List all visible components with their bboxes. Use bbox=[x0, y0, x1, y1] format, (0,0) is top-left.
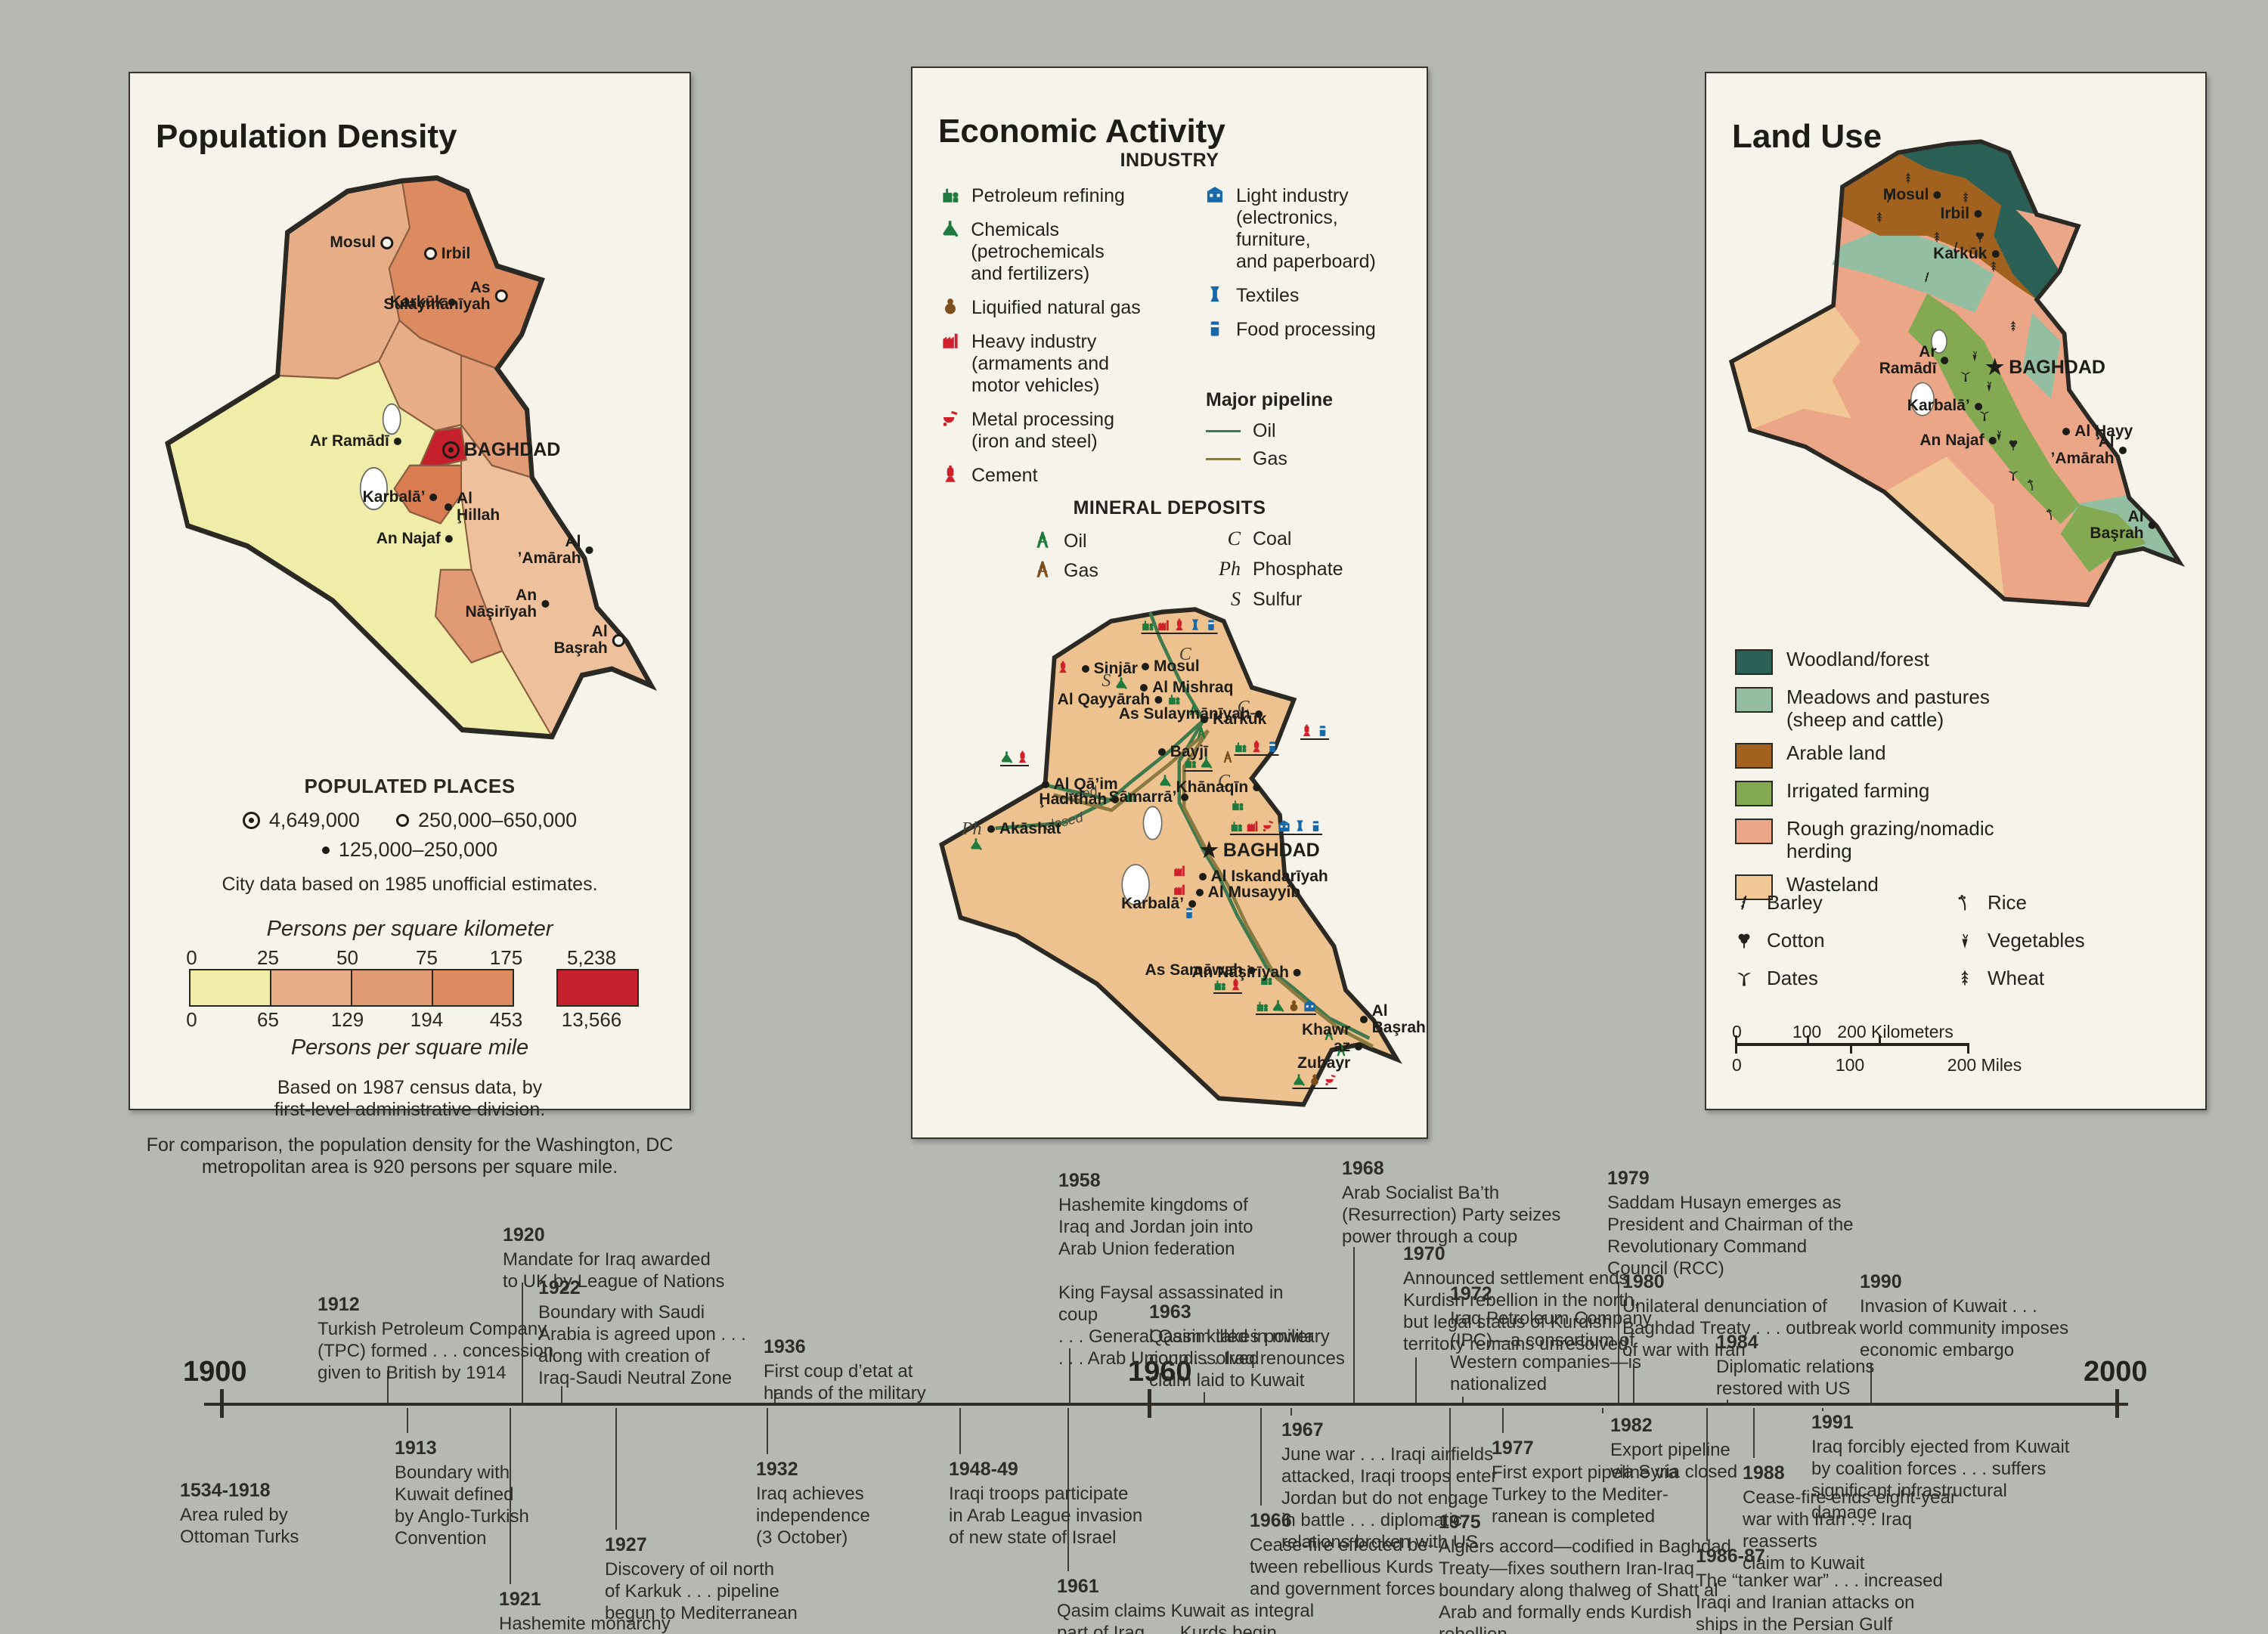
mineral-icons: Oil Gas bbox=[1033, 531, 1139, 582]
pipeline-heading: Major pipeline bbox=[1206, 389, 1417, 411]
legend-item-lng: Liquified natural gas bbox=[941, 297, 1191, 319]
liquified-natural-gas-icon bbox=[941, 297, 959, 315]
mineral-letter-phosphate: Ph bbox=[962, 819, 982, 840]
city-marker bbox=[448, 299, 456, 306]
map-city-samarra: Sāmarrā’ bbox=[1109, 789, 1189, 806]
per-sq-mile-title: Persons per square mile bbox=[145, 1035, 674, 1060]
barley-icon bbox=[1735, 893, 1753, 911]
heavy-industry-icon bbox=[1173, 883, 1185, 896]
map-city-bayji: Bayjī bbox=[1158, 744, 1208, 760]
heavy-industry-icon bbox=[1246, 819, 1259, 832]
city-data-note: City data based on 1985 unofficial estim… bbox=[145, 874, 674, 896]
legend-item-wheat: Wheat bbox=[1956, 961, 2137, 995]
per-sq-km-title: Persons per square kilometer bbox=[145, 917, 674, 942]
food-processing-icon bbox=[1206, 319, 1224, 337]
tick-1900 bbox=[220, 1389, 224, 1418]
map-city-baghdad: BAGHDAD bbox=[442, 440, 561, 460]
timeline-event-1913: 1913Boundary with Kuwait defined by Angl… bbox=[395, 1437, 569, 1549]
map-city-nasiriyah: An Nāşirīyah bbox=[465, 587, 549, 620]
land-use-legend: Woodland/forest Meadows and pastures (sh… bbox=[1735, 648, 2053, 900]
map-city-amarah: Al ’Amārah bbox=[2051, 434, 2127, 467]
city-marker bbox=[445, 503, 452, 511]
industry-heading: INDUSTRY bbox=[912, 150, 1427, 172]
light-industry-icon bbox=[1303, 999, 1316, 1012]
map-city-baghdad: ★BAGHDAD bbox=[1200, 840, 1320, 860]
vegetables-icon bbox=[1983, 379, 1996, 392]
petroleum-refining-icon bbox=[1231, 798, 1244, 811]
map-city-karkuk: Karkūk bbox=[390, 294, 456, 311]
irrigated-swatch bbox=[1735, 781, 1773, 806]
timeline-event-1963: 1963Qasim killed in military coup . . . … bbox=[1149, 1301, 1387, 1391]
textiles-icon bbox=[1188, 618, 1201, 631]
wheat-icon bbox=[1873, 211, 1886, 224]
city-marker bbox=[541, 600, 549, 608]
economic-activity-panel: Economic Activity INDUSTRY Petroleum ref… bbox=[911, 67, 1428, 1139]
rice-icon bbox=[2025, 478, 2038, 491]
wheat-icon bbox=[1959, 191, 1972, 204]
baghdad-industry-cluster bbox=[1230, 819, 1322, 835]
vegetables-icon bbox=[1969, 349, 1981, 362]
liquified-natural-gas-icon bbox=[1309, 1073, 1321, 1086]
map-city-najaf: An Najaf bbox=[376, 531, 453, 547]
heavy-industry-icon bbox=[1173, 864, 1185, 877]
city-marker bbox=[394, 438, 401, 445]
city-marker-bullseye bbox=[442, 441, 460, 459]
nasiriyah-industry-cluster bbox=[1256, 999, 1316, 1015]
vegetables-icon bbox=[1956, 931, 1974, 949]
cement-icon bbox=[1250, 740, 1263, 753]
legend-item-barley: Barley bbox=[1735, 886, 1901, 919]
chemicals-icon bbox=[970, 837, 983, 850]
timeline-event-1991: 1991Iraq forcibly ejected from Kuwait by… bbox=[1811, 1412, 2076, 1524]
oil-pipeline-line bbox=[1206, 430, 1241, 432]
legend-item-irrigated: Irrigated farming bbox=[1735, 779, 2053, 806]
timeline-event-1534-1918: 1534-1918Area ruled by Ottoman Turks bbox=[180, 1480, 354, 1548]
density-ramp: 0 25 50 75 175 5,238 0 65 bbox=[189, 946, 631, 1028]
chemicals-icon bbox=[1000, 750, 1013, 763]
scale-line bbox=[1735, 1043, 1969, 1046]
liquified-natural-gas-icon bbox=[1287, 999, 1300, 1012]
land-use-map: Mosul Irbil Karkūk Ar Ramādī ★BAGHDAD Ka… bbox=[1718, 130, 2194, 625]
map-city-nasiriyah: An Nāşirīyah bbox=[1192, 964, 1301, 981]
city-marker-star: ★ bbox=[1985, 359, 2004, 376]
timeline-event-1990: 1990Invasion of Kuwait . . . world commu… bbox=[1860, 1271, 2113, 1361]
cement-icon bbox=[1016, 750, 1029, 763]
population-density-panel: Population Density Mosul Irbil As Sulaym… bbox=[129, 72, 691, 1110]
map-city-irbil: Irbil bbox=[424, 245, 471, 262]
city-marker bbox=[586, 546, 593, 554]
woodland-swatch bbox=[1735, 649, 1773, 675]
populated-places-heading: POPULATED PLACES bbox=[145, 775, 674, 798]
qaim-industry-cluster bbox=[1000, 750, 1029, 766]
map-city-najaf: An Najaf bbox=[1919, 432, 1996, 449]
economic-activity-title: Economic Activity bbox=[938, 113, 1225, 150]
mineral-gas-row: Gas bbox=[1033, 560, 1139, 582]
economic-activity-map: closed closed S C C C Ph bbox=[928, 597, 1411, 1126]
tick-2000 bbox=[2115, 1389, 2119, 1418]
legend-item-rough-grazing: Rough grazing/nomadic herding bbox=[1735, 817, 2053, 862]
city-marker bbox=[445, 535, 453, 543]
cement-icon bbox=[1173, 618, 1185, 631]
map-city-sinjar: Sinjār bbox=[1082, 660, 1138, 676]
food-processing-icon bbox=[1266, 740, 1279, 753]
gas-pipeline-line bbox=[1206, 458, 1241, 460]
map-city-mosul: Mosul bbox=[1142, 658, 1200, 675]
mineral-phosphate-row: PhPhosphate bbox=[1215, 558, 1381, 580]
map-city-karbala: Karbalā’ bbox=[1121, 896, 1196, 912]
mineral-deposits-heading: MINERAL DEPOSITS bbox=[912, 497, 1427, 519]
pipeline-gas-row: Gas bbox=[1206, 448, 1417, 470]
map-city-akashat: Akāshāt bbox=[987, 821, 1061, 837]
crops-legend-right: Rice Vegetables Wheat bbox=[1956, 886, 2137, 995]
iraq-outline-landuse bbox=[1718, 130, 2194, 625]
meadows-swatch bbox=[1735, 687, 1773, 713]
cotton-icon bbox=[1735, 931, 1753, 949]
population-legend: POPULATED PLACES 4,649,000 250,000–650,0… bbox=[145, 775, 674, 1178]
legend-item-petroleum-refining: Petroleum refining bbox=[941, 185, 1191, 207]
map-city-khawr-az-zubayr: Khawr az Zubayr bbox=[1297, 1022, 1362, 1072]
legend-item-dates: Dates bbox=[1735, 961, 1901, 995]
city-marker bbox=[495, 289, 508, 302]
map-city-ramadi: Ar Ramādī bbox=[1879, 344, 1949, 377]
pipeline-legend: Major pipeline Oil Gas bbox=[1206, 389, 1417, 470]
cement-icon bbox=[1057, 661, 1070, 673]
legend-item-chemicals: Chemicals (petrochemicals and fertilizer… bbox=[941, 219, 1191, 285]
population-density-map: Mosul Irbil As Sulaymānīyah Karkūk Ar Ra… bbox=[153, 164, 667, 761]
city-marker-star: ★ bbox=[1200, 842, 1219, 859]
food-processing-icon bbox=[1309, 819, 1322, 832]
mineral-coal-row: CCoal bbox=[1215, 528, 1381, 550]
map-city-baghdad: ★BAGHDAD bbox=[1985, 357, 2105, 377]
legend-item-cotton: Cotton bbox=[1735, 924, 1901, 957]
city-marker bbox=[380, 237, 393, 249]
timeline-event-1936: 1936First coup d’etat at hands of the mi… bbox=[764, 1336, 964, 1404]
textiles-icon bbox=[1206, 285, 1224, 303]
chemicals-icon bbox=[941, 219, 959, 237]
gas-derrick-icon bbox=[1033, 560, 1052, 578]
legend-item-rice: Rice bbox=[1956, 886, 2137, 919]
khawr-az-zubayr-industry-cluster bbox=[1293, 1073, 1337, 1089]
map-city-basrah: Al Başrah bbox=[553, 624, 624, 657]
map-city-iskandariyah: Al Iskandarīyah bbox=[1199, 868, 1328, 885]
map-city-karbala: Karbalā’ bbox=[363, 489, 438, 506]
map-city-hillah: Al Ḩillah bbox=[445, 491, 500, 524]
legend-item-meadows: Meadows and pastures (sheep and cattle) bbox=[1735, 685, 2053, 731]
crops-legend-left: Barley Cotton Dates bbox=[1735, 886, 1901, 995]
rice-icon bbox=[1956, 893, 1974, 911]
food-processing-icon bbox=[1204, 618, 1217, 631]
petroleum-refining-icon bbox=[1235, 740, 1247, 753]
oil-derrick-icon bbox=[1194, 726, 1207, 739]
comparison-note: For comparison, the population density f… bbox=[145, 1134, 674, 1178]
timeline-event-1968: 1968Arab Socialist Ba’th (Resurrection) … bbox=[1342, 1158, 1591, 1248]
dates-icon bbox=[2006, 469, 2019, 481]
legend-item-vegetables: Vegetables bbox=[1956, 924, 2137, 957]
atlas-sheet: Population Density Mosul Irbil As Sulaym… bbox=[0, 0, 2268, 1634]
axis-year-1900: 1900 bbox=[183, 1356, 247, 1388]
map-city-mosul: Mosul bbox=[1883, 187, 1941, 203]
bullseye-symbol bbox=[243, 812, 260, 829]
dates-icon bbox=[1735, 969, 1753, 987]
map-city-karbala: Karbalā’ bbox=[1907, 398, 1982, 414]
chemicals-icon bbox=[1158, 774, 1171, 787]
light-industry-icon bbox=[1278, 819, 1290, 832]
timeline-event-1979: 1979Saddam Husayn emerges as President a… bbox=[1607, 1168, 1872, 1280]
petroleum-refining-icon bbox=[1141, 618, 1154, 631]
cotton-icon bbox=[2006, 438, 2019, 451]
mineral-oil-row: Oil bbox=[1033, 531, 1139, 552]
chemicals-icon bbox=[1293, 1073, 1306, 1086]
map-city-amarah: Al ’Amārah bbox=[510, 534, 593, 567]
cement-icon bbox=[941, 465, 959, 483]
map-city-hadithah: Ḩadīthah bbox=[1039, 791, 1119, 808]
legend-item-arable: Arable land bbox=[1735, 741, 2053, 769]
metal-processing-icon bbox=[1325, 1073, 1337, 1086]
karkuk-industry-cluster bbox=[1235, 740, 1279, 756]
timeline-axis bbox=[204, 1403, 2128, 1406]
ramp-swatch-2 bbox=[270, 969, 352, 1007]
land-use-panel: Land Use bbox=[1705, 72, 2207, 1110]
ramp-swatch-1 bbox=[189, 969, 271, 1007]
food-processing-icon bbox=[1316, 724, 1329, 737]
ramp-swatch-5 bbox=[556, 969, 639, 1007]
cotton-icon bbox=[1973, 231, 1986, 243]
scale-bar: 0 100 200 Kilometers 0 100 200 Miles bbox=[1735, 1022, 2037, 1076]
ramp-swatch-3 bbox=[351, 969, 433, 1007]
legend-item-cement: Cement bbox=[941, 465, 1191, 487]
chemicals-icon bbox=[1115, 676, 1128, 689]
tick-1960 bbox=[1148, 1389, 1151, 1418]
map-city-mosul: Mosul bbox=[330, 234, 393, 251]
city-marker bbox=[612, 634, 625, 647]
textiles-icon bbox=[1294, 819, 1306, 832]
mosul-industry-cluster bbox=[1141, 618, 1217, 634]
gas-derrick-icon bbox=[1221, 750, 1234, 763]
open-circle-symbol bbox=[396, 814, 409, 827]
industry-legend-right: Light industry (electronics, furniture, … bbox=[1206, 185, 1417, 341]
dates-icon bbox=[1959, 370, 1972, 382]
metal-processing-icon bbox=[1262, 819, 1275, 832]
map-city-ramadi: Ar Ramādī bbox=[310, 433, 401, 450]
light-industry-icon bbox=[1206, 185, 1224, 203]
heavy-industry-icon bbox=[1157, 618, 1170, 631]
legend-item-textiles: Textiles bbox=[1206, 285, 1417, 307]
population-density-title: Population Density bbox=[156, 118, 457, 156]
legend-item-metal-processing: Metal processing (iron and steel) bbox=[941, 409, 1191, 453]
sulaymaniyah-industry-cluster bbox=[1300, 724, 1329, 740]
wheat-icon bbox=[1988, 260, 2000, 273]
oil-derrick-icon bbox=[1033, 531, 1052, 549]
legend-item-woodland: Woodland/forest bbox=[1735, 648, 2053, 675]
pipeline-oil-row: Oil bbox=[1206, 420, 1417, 442]
legend-item-heavy-industry: Heavy industry (armaments and motor vehi… bbox=[941, 331, 1191, 397]
petroleum-refining-icon bbox=[1256, 999, 1269, 1012]
chemicals-icon bbox=[1272, 999, 1284, 1012]
petroleum-refining-icon bbox=[1230, 819, 1243, 832]
cement-icon bbox=[1300, 724, 1313, 737]
map-city-karkuk: Karkūk bbox=[1201, 711, 1266, 728]
map-city-basrah: Al Başrah bbox=[1360, 1003, 1426, 1036]
city-marker bbox=[424, 247, 437, 260]
census-note: Based on 1987 census data, by first-leve… bbox=[145, 1077, 674, 1121]
wheat-icon bbox=[2006, 320, 2019, 333]
rough-grazing-swatch bbox=[1735, 819, 1773, 844]
petroleum-refining-icon bbox=[941, 185, 959, 203]
legend-item-light-industry: Light industry (electronics, furniture, … bbox=[1206, 185, 1417, 273]
arable-swatch bbox=[1735, 743, 1773, 769]
rice-icon bbox=[2045, 508, 2058, 521]
timeline-event-1948-49: 1948-49Iraqi troops participate in Arab … bbox=[949, 1459, 1194, 1549]
wheat-icon bbox=[1956, 969, 1974, 987]
heavy-industry-icon bbox=[941, 331, 959, 349]
wheat-icon bbox=[1930, 231, 1943, 243]
city-marker bbox=[429, 494, 437, 501]
wheat-icon bbox=[1902, 172, 1915, 184]
legend-item-food-processing: Food processing bbox=[1206, 319, 1417, 341]
map-city-karkuk: Karkūk bbox=[1933, 246, 1999, 262]
barley-icon bbox=[1921, 271, 1934, 283]
timeline-event-1922: 1922Boundary with Saudi Arabia is agreed… bbox=[538, 1277, 776, 1389]
iraq-outline-population bbox=[153, 164, 667, 761]
map-city-musayyib: Al Musayyib bbox=[1196, 884, 1301, 901]
dot-symbol bbox=[322, 846, 330, 854]
map-city-irbil: Irbil bbox=[1941, 206, 1982, 222]
metal-processing-icon bbox=[941, 409, 959, 427]
timeline-event-1932: 1932Iraq achieves independence (3 Octobe… bbox=[756, 1459, 934, 1549]
industry-legend-left: Petroleum refining Chemicals (petrochemi… bbox=[941, 185, 1191, 487]
map-city-basrah: Al Başrah bbox=[2090, 509, 2155, 542]
ramp-swatch-4 bbox=[432, 969, 514, 1007]
